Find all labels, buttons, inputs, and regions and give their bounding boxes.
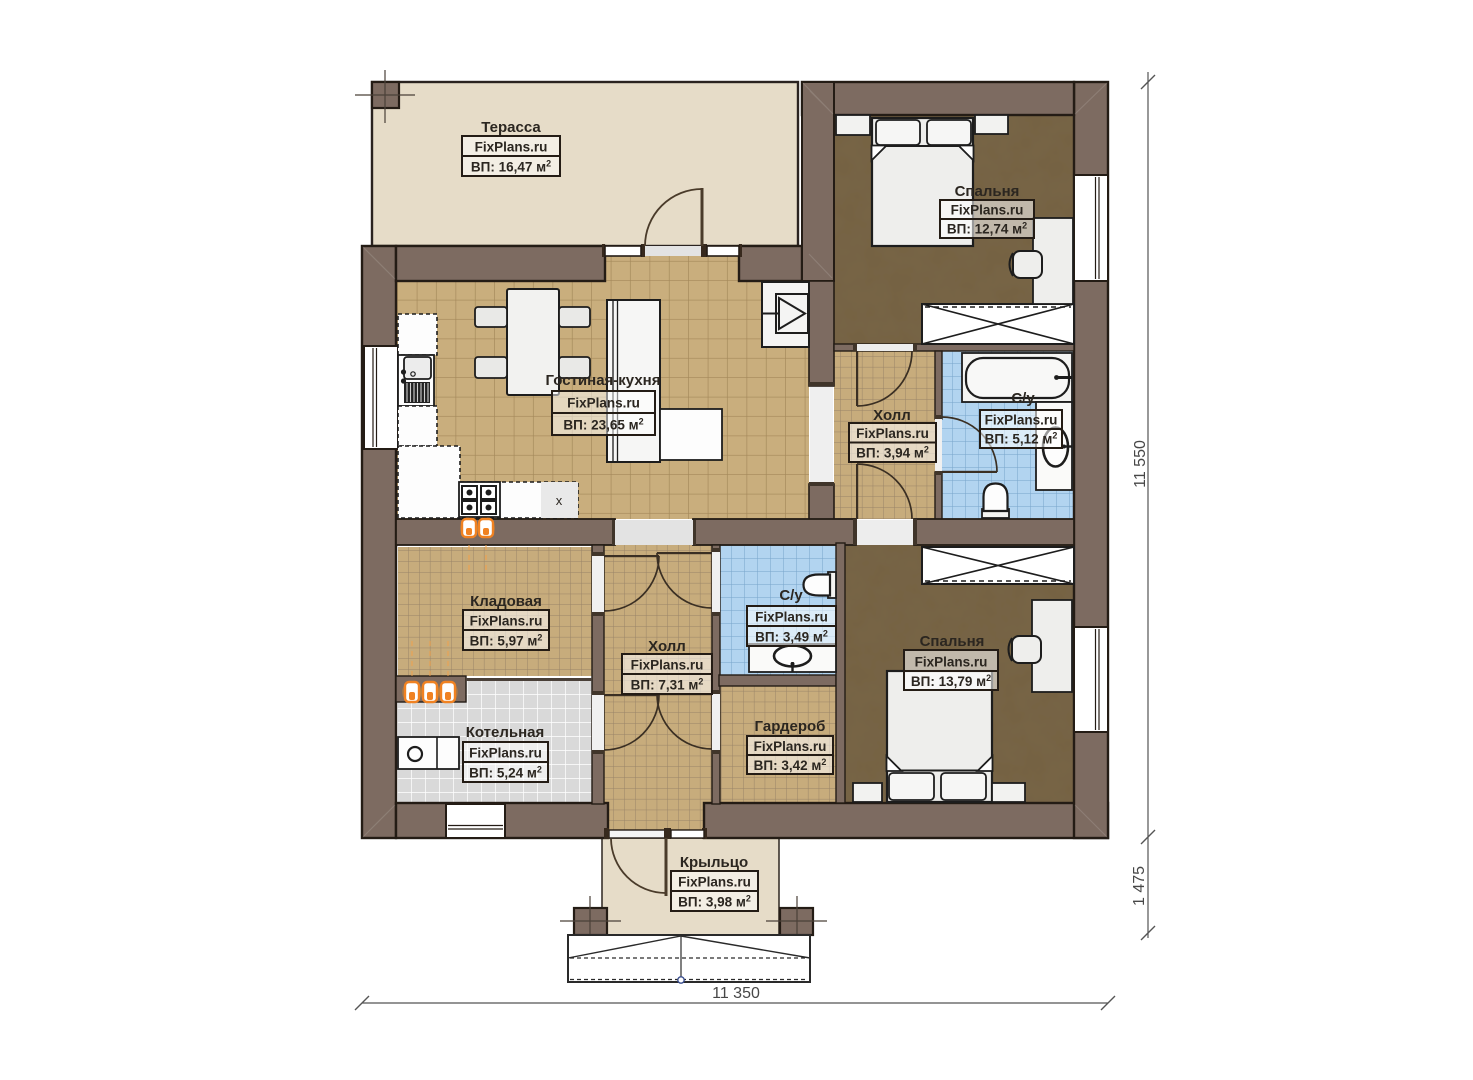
svg-text:ВП: 16,47 м2: ВП: 16,47 м2 (471, 159, 551, 175)
svg-text:FixPlans.ru: FixPlans.ru (915, 655, 988, 670)
svg-text:FixPlans.ru: FixPlans.ru (755, 610, 828, 625)
svg-text:ВП: 3,98 м2: ВП: 3,98 м2 (678, 894, 751, 910)
svg-text:ВП: 5,97 м2: ВП: 5,97 м2 (470, 633, 543, 649)
svg-text:С/у: С/у (1011, 390, 1035, 407)
svg-text:ВП: 12,74 м2: ВП: 12,74 м2 (947, 221, 1027, 237)
svg-text:Кладовая: Кладовая (470, 593, 542, 610)
svg-text:Холл: Холл (648, 638, 686, 655)
svg-text:FixPlans.ru: FixPlans.ru (475, 140, 548, 155)
svg-text:FixPlans.ru: FixPlans.ru (678, 875, 751, 890)
svg-text:FixPlans.ru: FixPlans.ru (470, 614, 543, 629)
svg-text:Терасса: Терасса (481, 119, 541, 136)
svg-text:Холл: Холл (873, 407, 911, 424)
svg-text:FixPlans.ru: FixPlans.ru (469, 746, 542, 761)
svg-text:FixPlans.ru: FixPlans.ru (631, 658, 704, 673)
svg-text:x: x (556, 493, 563, 508)
svg-text:Гардероб: Гардероб (755, 718, 826, 735)
svg-text:11 550: 11 550 (1132, 440, 1149, 488)
svg-text:FixPlans.ru: FixPlans.ru (985, 413, 1058, 428)
svg-text:FixPlans.ru: FixPlans.ru (856, 426, 929, 441)
svg-text:ВП: 5,24 м2: ВП: 5,24 м2 (469, 765, 542, 781)
svg-text:С/у: С/у (779, 587, 803, 604)
svg-text:Котельная: Котельная (466, 724, 545, 741)
svg-text:ВП: 3,42 м2: ВП: 3,42 м2 (754, 757, 827, 773)
svg-text:ВП: 3,49 м2: ВП: 3,49 м2 (755, 629, 828, 645)
svg-text:ВП: 7,31 м2: ВП: 7,31 м2 (631, 677, 704, 693)
svg-text:Крыльцо: Крыльцо (680, 854, 748, 871)
svg-text:1 475: 1 475 (1131, 866, 1148, 906)
svg-text:11 350: 11 350 (712, 985, 760, 1002)
svg-text:FixPlans.ru: FixPlans.ru (951, 203, 1024, 218)
svg-text:FixPlans.ru: FixPlans.ru (754, 739, 827, 754)
svg-text:ВП: 23,65 м2: ВП: 23,65 м2 (563, 417, 643, 433)
svg-text:Гостиная-кухня: Гостиная-кухня (546, 372, 661, 389)
svg-text:FixPlans.ru: FixPlans.ru (567, 396, 640, 411)
svg-text:Спальня: Спальня (920, 633, 985, 650)
svg-text:Спальня: Спальня (955, 183, 1020, 200)
svg-text:ВП: 3,94 м2: ВП: 3,94 м2 (856, 445, 929, 461)
svg-text:ВП: 5,12 м2: ВП: 5,12 м2 (985, 431, 1058, 447)
svg-text:ВП: 13,79 м2: ВП: 13,79 м2 (911, 673, 991, 689)
